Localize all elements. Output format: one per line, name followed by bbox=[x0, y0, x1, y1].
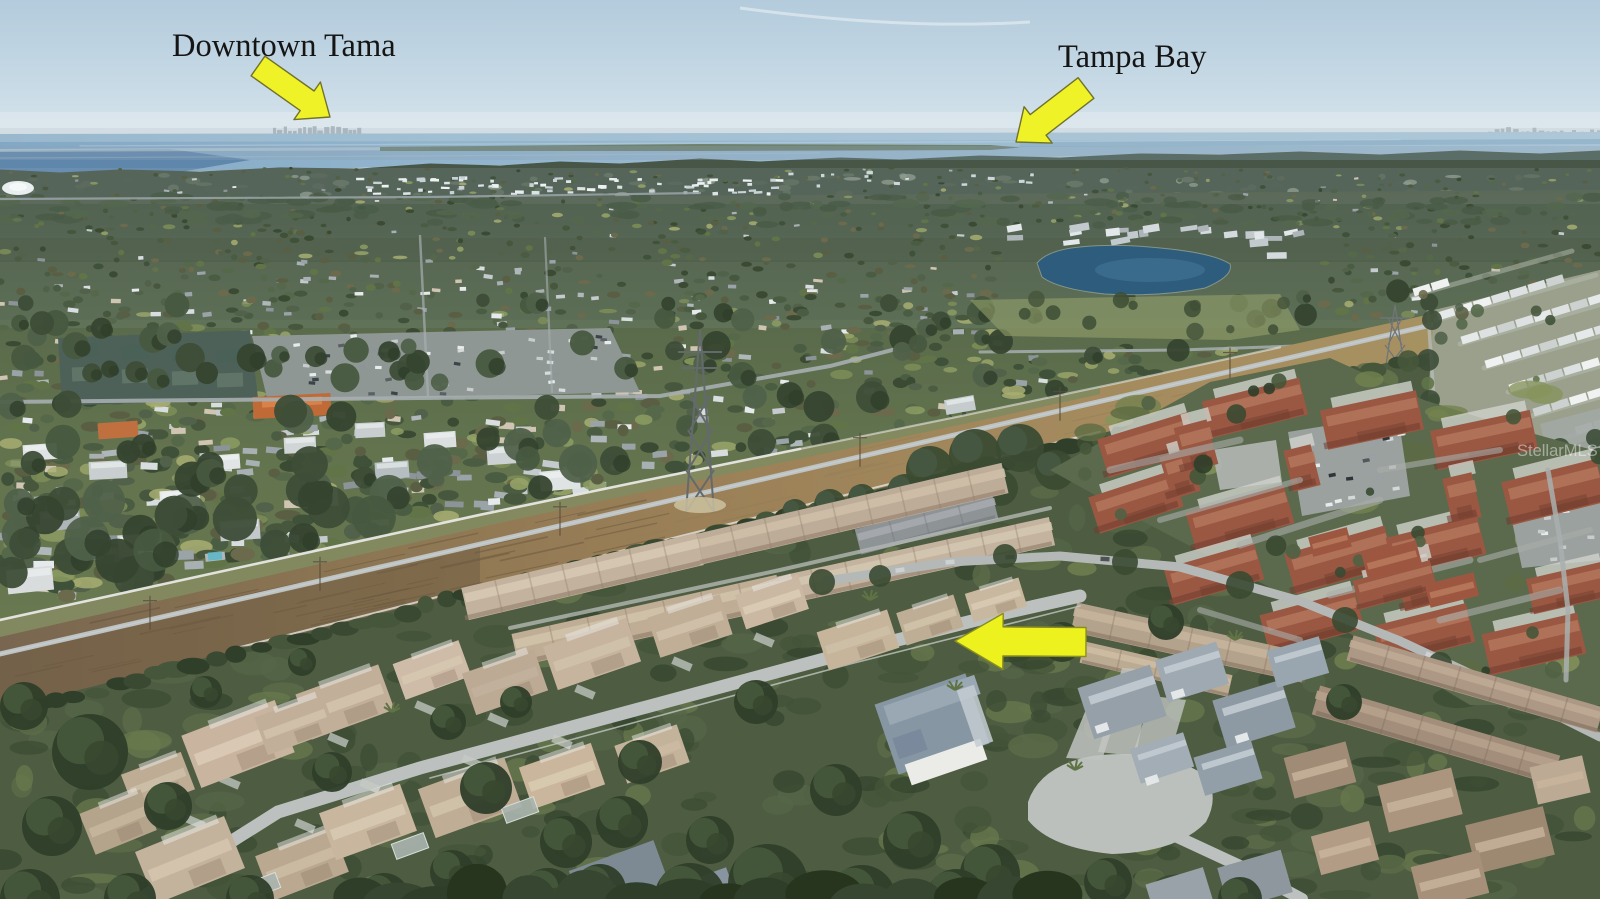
svg-text:StellarMLS: StellarMLS bbox=[1517, 442, 1598, 460]
svg-text:Downtown Tama: Downtown Tama bbox=[172, 28, 396, 64]
svg-text:Tampa Bay: Tampa Bay bbox=[1058, 39, 1207, 75]
